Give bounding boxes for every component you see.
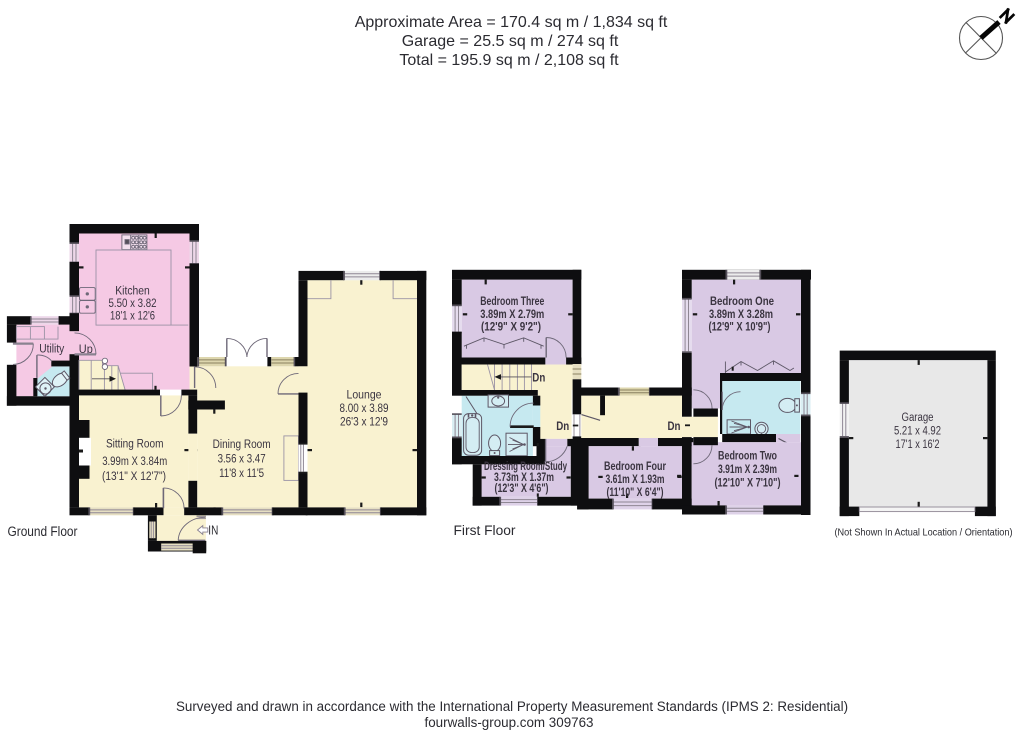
svg-text:Approximate Area = 170.4 sq m: Approximate Area = 170.4 sq m / 1,834 sq… — [355, 14, 668, 31]
svg-text:(12'10" X 7'10"): (12'10" X 7'10") — [715, 477, 781, 489]
svg-text:Sitting Room: Sitting Room — [106, 438, 164, 450]
svg-text:3.99m X 3.84m: 3.99m X 3.84m — [102, 456, 167, 468]
svg-text:Bedroom Four: Bedroom Four — [604, 461, 666, 473]
svg-text:Utility: Utility — [39, 344, 64, 356]
svg-text:Dn: Dn — [668, 421, 681, 433]
svg-text:IN: IN — [208, 523, 218, 537]
svg-text:(12'3" X 4'6"): (12'3" X 4'6") — [495, 483, 549, 495]
svg-text:Garage = 25.5 sq m / 274 sq ft: Garage = 25.5 sq m / 274 sq ft — [402, 33, 619, 50]
svg-text:Dressing Room/Study: Dressing Room/Study — [484, 461, 567, 473]
svg-text:Garage: Garage — [902, 412, 934, 424]
svg-text:(Not Shown In Actual Location: (Not Shown In Actual Location / Orientat… — [835, 528, 1013, 539]
svg-text:Dn: Dn — [556, 421, 569, 433]
svg-text:fourwalls-group.com 309763: fourwalls-group.com 309763 — [425, 715, 594, 730]
svg-text:Kitchen: Kitchen — [115, 286, 150, 298]
svg-text:(13'1" X 12'7"): (13'1" X 12'7") — [102, 471, 166, 483]
svg-text:3.91m X 2.39m: 3.91m X 2.39m — [718, 464, 777, 476]
svg-text:Bedroom Two: Bedroom Two — [718, 451, 777, 463]
svg-text:3.61m X 1.93m: 3.61m X 1.93m — [606, 474, 665, 486]
svg-text:18'1 x 12'6: 18'1 x 12'6 — [110, 310, 155, 322]
svg-text:Bedroom One: Bedroom One — [710, 296, 774, 308]
svg-text:Lounge: Lounge — [347, 389, 382, 401]
svg-text:17'1 x 16'2: 17'1 x 16'2 — [896, 439, 940, 451]
svg-text:8.00 x 3.89: 8.00 x 3.89 — [340, 403, 389, 415]
svg-text:Dining Room: Dining Room — [213, 439, 271, 451]
svg-text:3.56 x 3.47: 3.56 x 3.47 — [218, 453, 266, 465]
svg-text:(12'9" X 9'2"): (12'9" X 9'2") — [481, 321, 541, 333]
svg-text:Dn: Dn — [532, 372, 545, 384]
svg-text:5.50 x 3.82: 5.50 x 3.82 — [109, 298, 157, 310]
svg-text:Surveyed and drawn in accordan: Surveyed and drawn in accordance with th… — [176, 699, 848, 714]
svg-text:5.21 x 4.92: 5.21 x 4.92 — [894, 426, 941, 438]
svg-text:11'8 x 11'5: 11'8 x 11'5 — [219, 468, 264, 480]
svg-text:Ground Floor: Ground Floor — [8, 524, 78, 540]
svg-text:(12'9" X 10'9"): (12'9" X 10'9") — [709, 321, 771, 333]
svg-text:3.89m X 3.28m: 3.89m X 3.28m — [709, 309, 773, 321]
svg-text:Bedroom Three: Bedroom Three — [480, 296, 544, 308]
svg-text:3.89m X 2.79m: 3.89m X 2.79m — [480, 309, 544, 321]
svg-text:First Floor: First Floor — [454, 523, 516, 539]
svg-text:26'3 x 12'9: 26'3 x 12'9 — [340, 416, 388, 428]
svg-text:Total = 195.9 sq m / 2,108 sq: Total = 195.9 sq m / 2,108 sq ft — [399, 52, 619, 69]
svg-text:(11'10" X 6'4"): (11'10" X 6'4") — [607, 487, 664, 499]
